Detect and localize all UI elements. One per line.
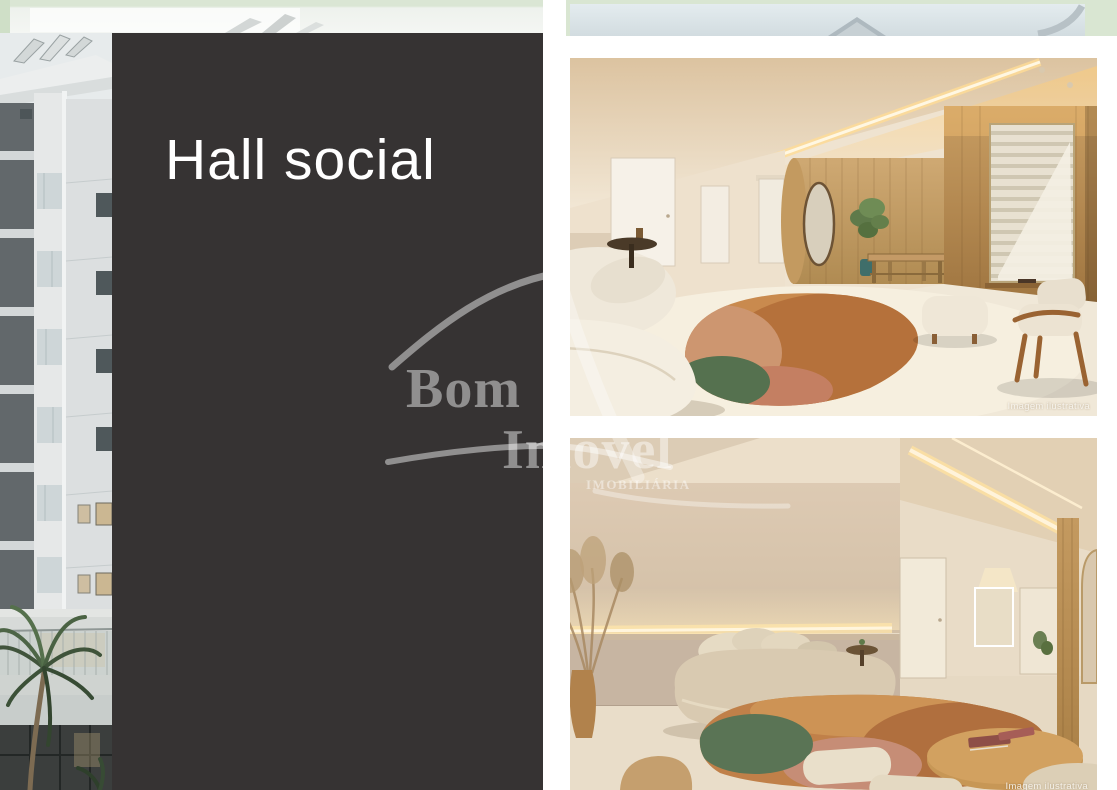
- rooftop-remnant-graphic: [0, 0, 543, 33]
- lounge-render-graphic: [570, 438, 1097, 790]
- building-graphic: [0, 33, 112, 790]
- door: [701, 186, 729, 263]
- oval-mirror: [804, 183, 834, 265]
- brochure-page: Hall social: [0, 0, 1117, 790]
- gallery-image-lounge[interactable]: Imagem ilustrativa: [570, 438, 1097, 790]
- wall-mirror: [975, 588, 1013, 646]
- image-disclaimer: Imagem ilustrativa: [1006, 781, 1088, 790]
- remnant-sky-panel: [570, 4, 1085, 36]
- lobby-render-graphic: [570, 58, 1097, 416]
- previous-slide-remnant-right: [566, 0, 1117, 36]
- stairs-artwork: [990, 124, 1074, 282]
- previous-slide-remnant-left: [0, 0, 543, 33]
- gallery-image-lobby[interactable]: Imagem ilustrativa: [570, 58, 1097, 416]
- door: [900, 558, 946, 678]
- building-facade-render: [0, 33, 112, 790]
- title-panel: Hall social: [112, 33, 543, 790]
- image-disclaimer: Imagem ilustrativa: [1008, 401, 1090, 412]
- hall-door: [759, 179, 784, 263]
- ottoman: [913, 296, 997, 348]
- remnant-swoosh: [570, 4, 1085, 36]
- page-title: Hall social: [165, 131, 436, 191]
- arched-mirror: [1082, 550, 1097, 683]
